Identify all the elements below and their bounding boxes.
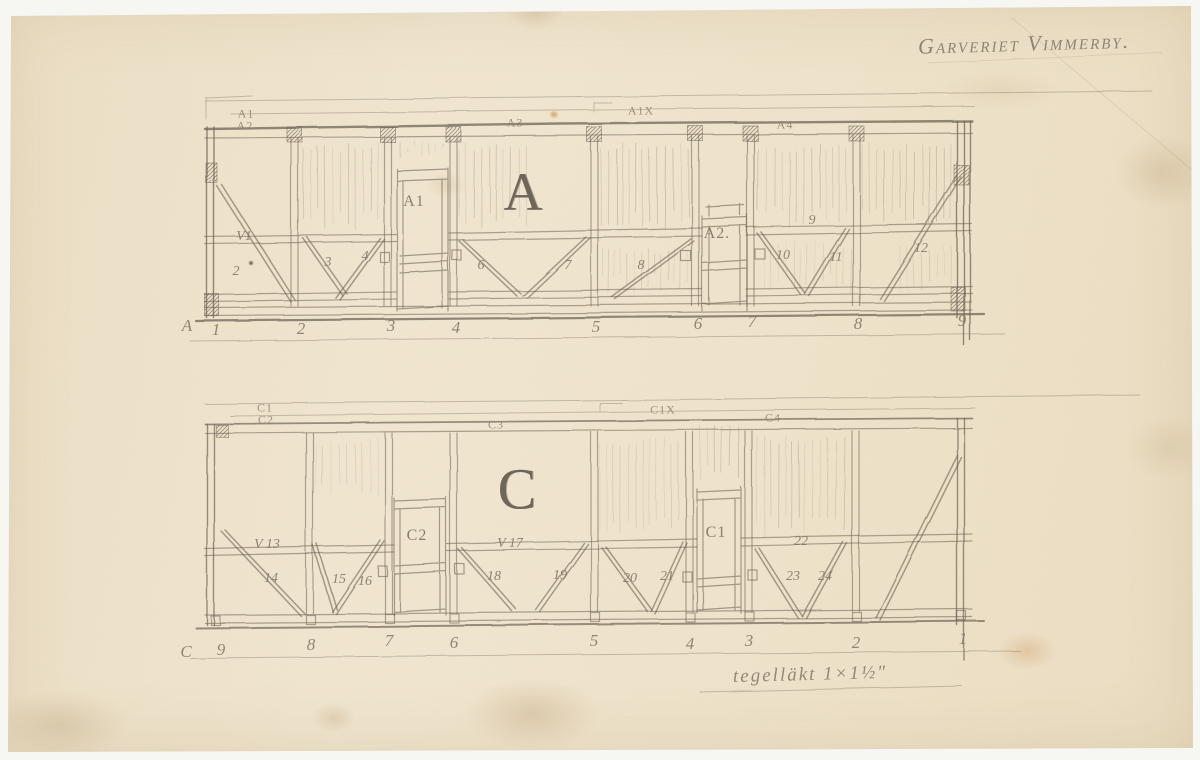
drawing-paper: Garveriet Vimmerby. A C A1A2A3A1XA4A1A2.… (0, 0, 1200, 757)
paper-grain (0, 0, 1200, 757)
elevation-c-joint-hatches (216, 425, 228, 437)
pencil-linework (0, 0, 1200, 757)
material-annotation: tegelläkt 1×1½″ (733, 662, 888, 688)
scanned-drawing: { "document": { "title": "Garveriet Vimm… (0, 0, 1200, 757)
